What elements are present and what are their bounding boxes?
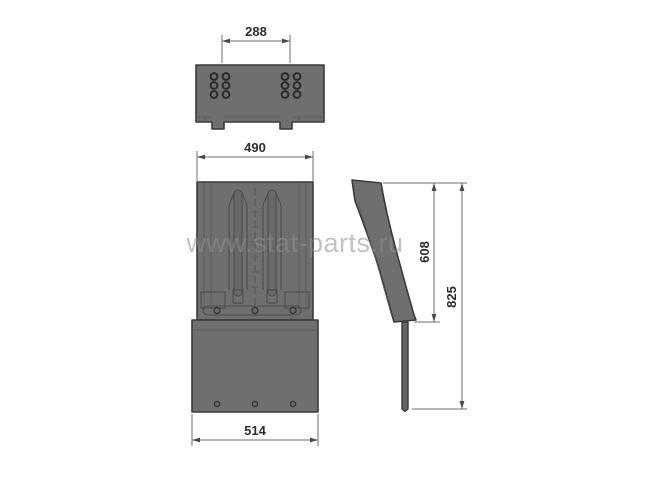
dimension-514: 514 [192,414,318,446]
bolt-hole [223,82,230,89]
bolt-hole [282,73,289,80]
dimension-label-608: 608 [417,241,432,263]
arrowhead-right [310,438,318,443]
clamp-bolt [290,308,296,314]
dimension-label-825: 825 [444,286,459,308]
arrowhead-bottom [432,314,437,322]
watermark-text: www.stat-parts.ru [185,228,403,258]
bolt-hole [211,73,218,80]
clamp-bolt [252,308,258,314]
dimension-label-490: 490 [244,140,266,155]
bolt-hole [294,91,301,98]
arrowhead-left [197,155,205,160]
bolt-hole [282,82,289,89]
bolt-hole [282,91,289,98]
front-view: 490 [192,140,318,446]
dimension-490: 490 [197,140,313,181]
arrowhead-left [222,39,230,44]
dimension-label-288: 288 [245,24,267,39]
side-view-flap-strip [402,322,408,412]
arrowhead-top [460,183,465,191]
flap-hole [252,401,257,406]
dimension-825: 825 [412,183,467,409]
dimension-288: 288 [222,24,290,63]
dimension-label-514: 514 [244,423,266,438]
front-view-flap [192,320,318,412]
arrowhead-left [192,438,200,443]
bolt-hole [223,91,230,98]
drawing-canvas: 288 490 [0,0,650,487]
technical-drawing: 288 490 [0,0,650,487]
arrowhead-bottom [460,401,465,409]
bolt-hole [211,82,218,89]
dimension-608: 608 [414,183,440,322]
arrowhead-right [282,39,290,44]
bolt-hole [223,73,230,80]
bolt-hole [294,82,301,89]
arrowhead-right [305,155,313,160]
flap-hole [214,401,219,406]
flap-hole [290,401,295,406]
side-view: 608 825 [352,180,467,412]
arrowhead-top [432,183,437,191]
top-view: 288 [196,24,324,129]
bolt-hole [294,73,301,80]
clamp-bolt [214,308,220,314]
bolt-hole [211,91,218,98]
